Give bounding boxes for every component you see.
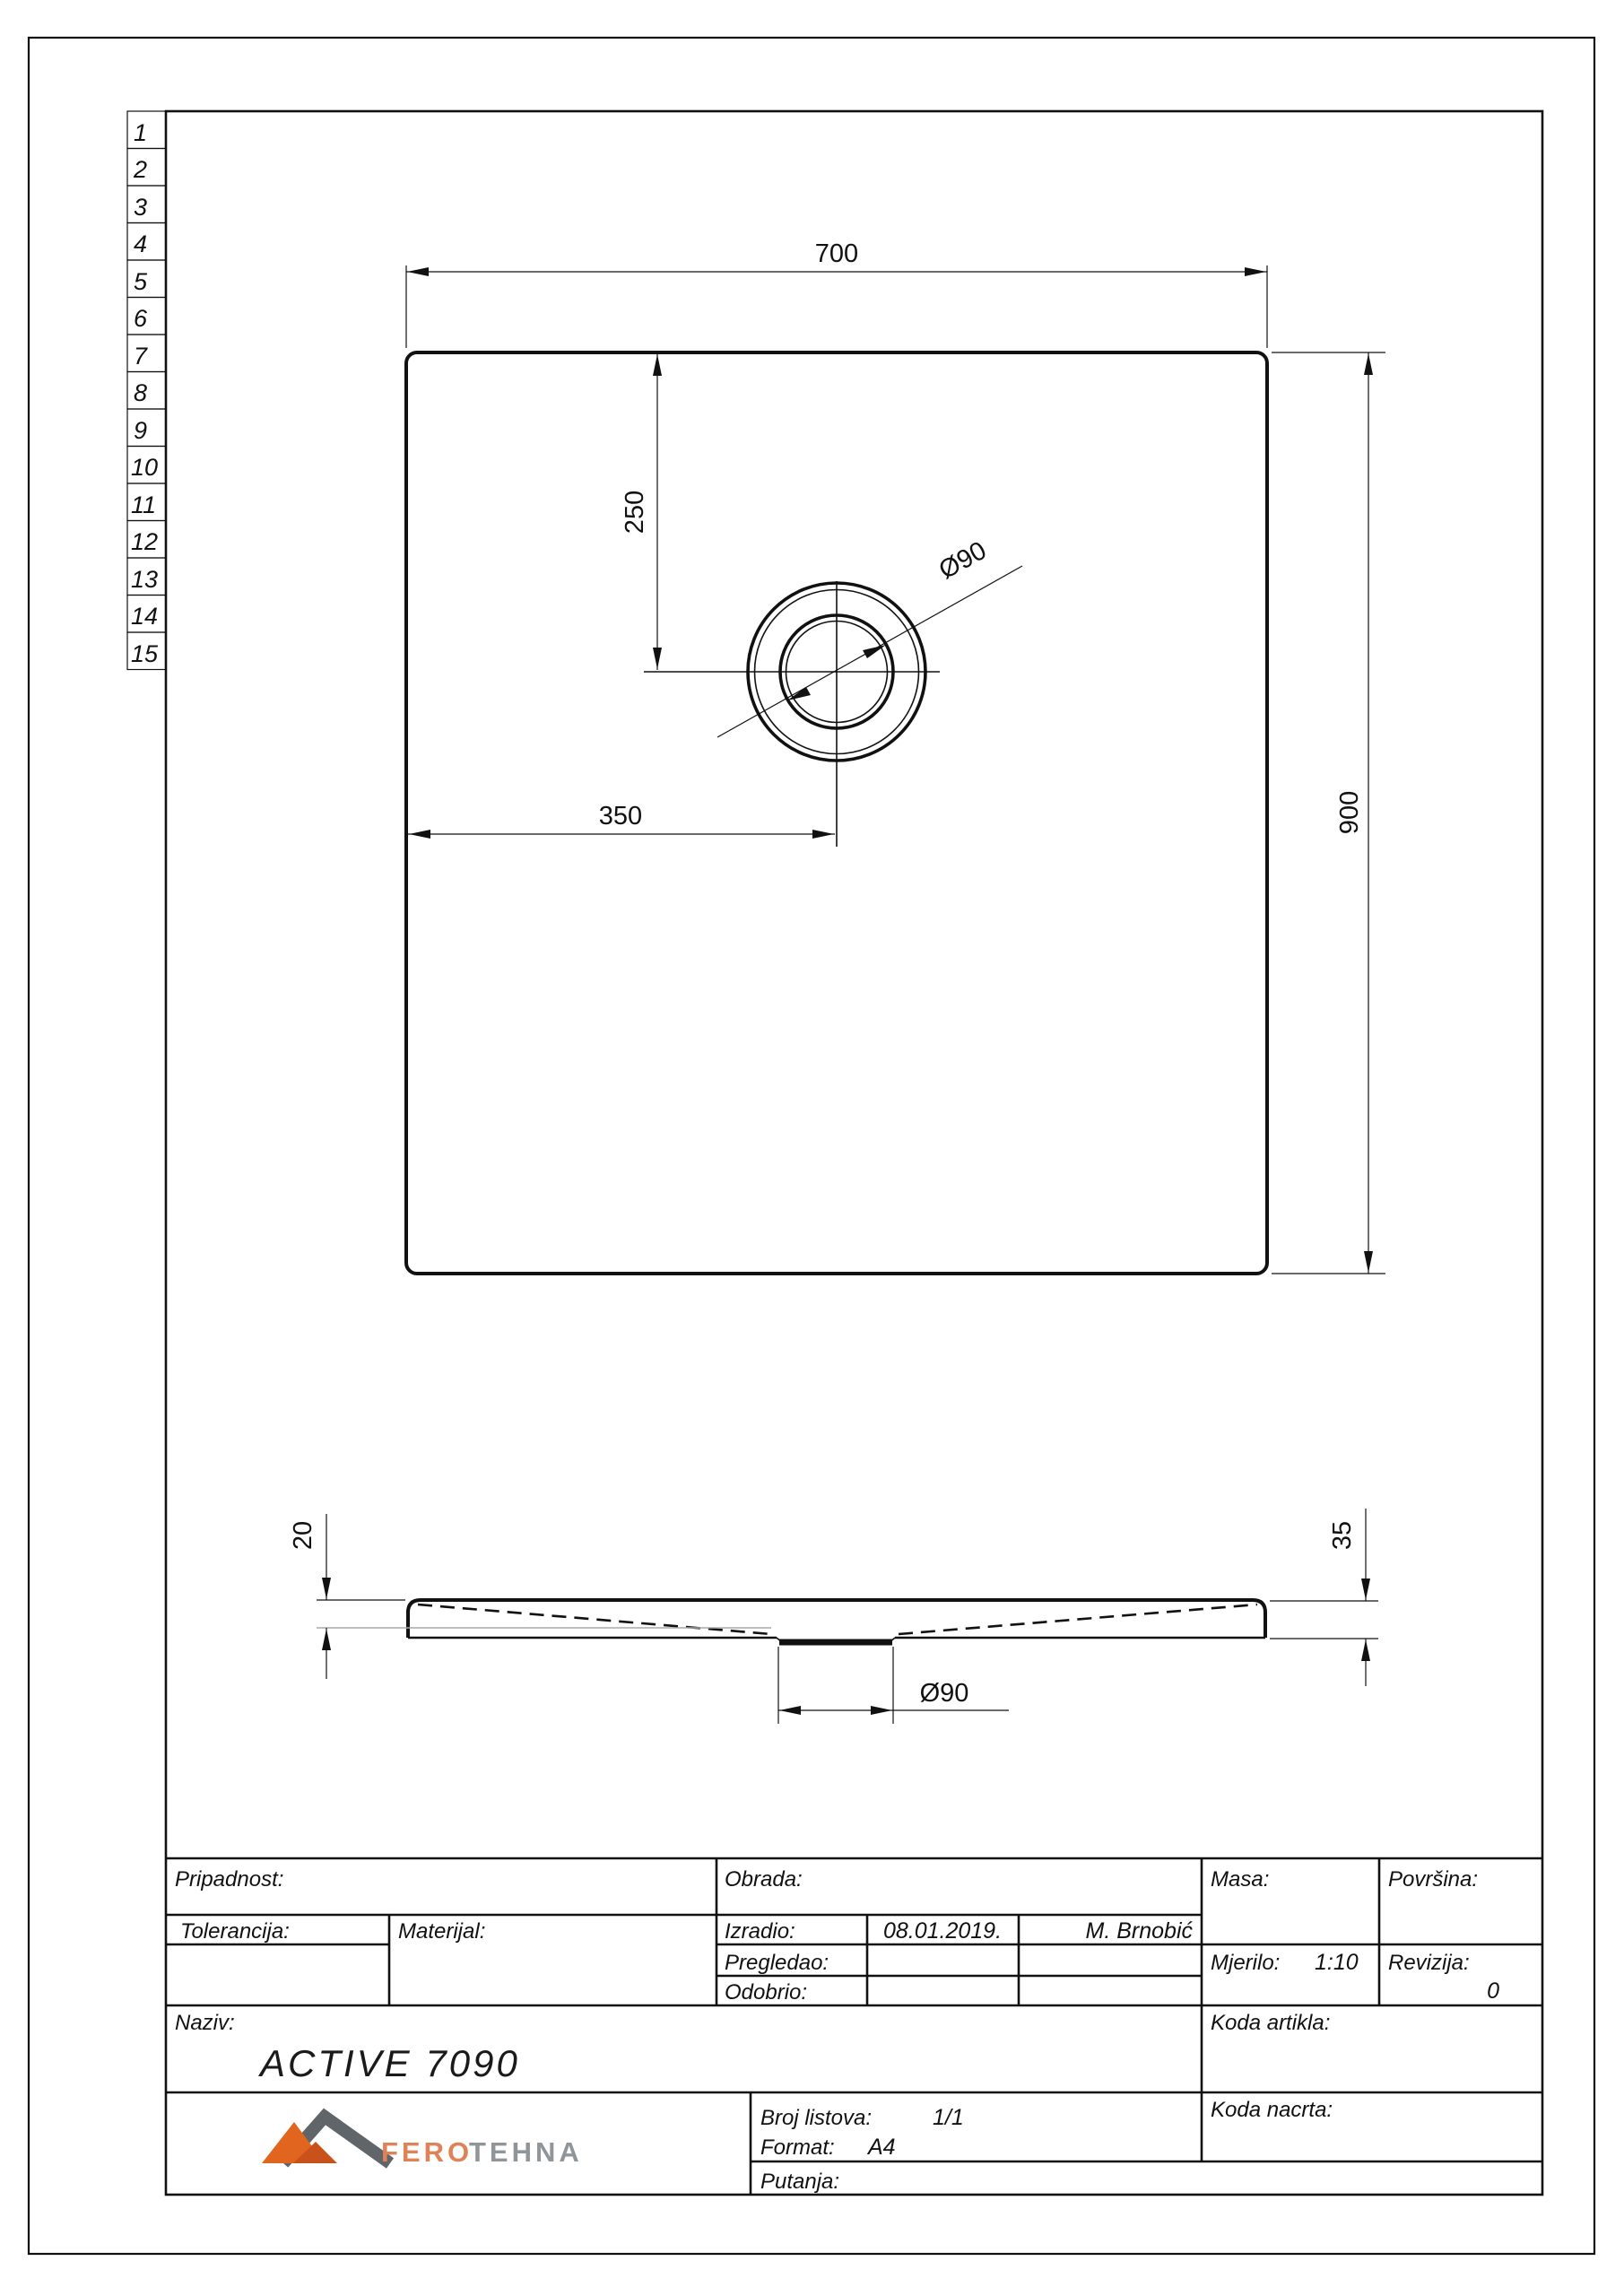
arrowhead-left — [407, 267, 429, 276]
dimension-20: 20 — [289, 1514, 405, 1679]
title-block: Pripadnost: Obrada: Masa: Površina: Tole… — [166, 1858, 1542, 2195]
masa-label: Masa: — [1211, 1867, 1269, 1892]
arrowhead-left — [779, 1706, 801, 1715]
arrowhead-bottom — [653, 648, 662, 669]
row-number: 5 — [134, 268, 148, 295]
logo-text-tehna: TEHNA — [469, 2136, 583, 2168]
mjerilo-label: Mjerilo: — [1211, 1951, 1280, 1975]
materijal-label: Materijal: — [398, 1919, 485, 1944]
dimension-drain-bottom: Ø90 — [778, 1647, 1009, 1724]
arrowhead-left — [409, 830, 430, 839]
arrowhead-down — [322, 1578, 331, 1599]
inner-floor-slope-right — [899, 1605, 1257, 1634]
izradio-label: Izradio: — [725, 1919, 795, 1944]
pregledao-label: Pregledao: — [725, 1951, 829, 1975]
dimension-text-drain-bottom: Ø90 — [920, 1679, 969, 1708]
row-number: 6 — [134, 305, 148, 332]
arrowhead-top — [1364, 353, 1373, 375]
arrowhead-up — [322, 1629, 331, 1650]
arrowhead-bottom — [1364, 1251, 1373, 1273]
arrowhead-top — [653, 354, 662, 376]
dimension-text-drain-top: Ø90 — [934, 536, 991, 586]
tolerancija-label: Tolerancija: — [180, 1919, 290, 1944]
section-view: 20 35 Ø90 — [289, 1509, 1378, 1724]
naziv-label: Naziv: — [175, 2011, 235, 2035]
obrada-label: Obrada: — [725, 1867, 803, 1892]
row-number: 4 — [134, 230, 147, 257]
izradio-date: 08.01.2019. — [883, 1918, 1002, 1944]
inner-frame — [166, 111, 1542, 2195]
dimension-35: 35 — [1270, 1509, 1378, 1686]
arrowhead-right — [812, 830, 834, 839]
dimension-text-700: 700 — [815, 239, 858, 268]
format-label: Format: — [760, 2135, 835, 2160]
row-number: 2 — [133, 156, 147, 183]
putanja-label: Putanja: — [760, 2170, 839, 2194]
dimension-text-20: 20 — [289, 1521, 317, 1550]
cad-sheet-canvas: 1 2 3 4 5 6 7 8 9 10 11 12 13 14 15 — [0, 0, 1624, 2296]
izradio-name: M. Brnobić — [1086, 1918, 1194, 1944]
drawing-sheet: { "row_numbers": ["1","2","3","4","5","6… — [0, 0, 1624, 2296]
mjerilo-value: 1:10 — [1315, 1950, 1359, 1975]
dimension-350: 350 — [408, 802, 835, 839]
koda-nacrta-label: Koda nacrta: — [1211, 2098, 1333, 2122]
row-number: 8 — [134, 379, 147, 406]
arrowhead-down — [1361, 1578, 1370, 1600]
logo-text-fero: FERO — [381, 2136, 473, 2168]
row-number: 12 — [131, 528, 158, 555]
broj-listova-value: 1/1 — [933, 2105, 964, 2130]
dimension-text-250: 250 — [621, 491, 649, 534]
inner-floor-slope-left — [418, 1605, 771, 1634]
row-number: 11 — [131, 491, 156, 518]
naziv-value: ACTIVE 7090 — [257, 2042, 520, 2084]
top-view: 700 900 250 350 — [406, 239, 1385, 1274]
row-number: 10 — [131, 454, 158, 481]
dimension-text-35: 35 — [1328, 1521, 1357, 1550]
row-number: 7 — [134, 343, 148, 370]
row-number: 15 — [131, 640, 159, 667]
arrowhead-up — [1361, 1639, 1370, 1661]
row-number: 1 — [134, 119, 147, 146]
revizija-value: 0 — [1487, 1979, 1499, 2004]
arrowhead-right — [871, 1706, 892, 1715]
arrowhead-right — [1245, 267, 1266, 276]
dimension-text-350: 350 — [599, 802, 642, 831]
pripadnost-label: Pripadnost: — [175, 1867, 283, 1892]
profile-top-surface — [408, 1600, 1265, 1638]
odobrio-label: Odobrio: — [725, 1980, 807, 2005]
row-number: 3 — [134, 194, 147, 221]
row-number-strip: 1 2 3 4 5 6 7 8 9 10 11 12 13 14 15 — [127, 111, 166, 670]
format-value: A4 — [866, 2135, 896, 2160]
dimension-250: 250 — [621, 353, 662, 670]
dimension-900: 900 — [1272, 352, 1385, 1274]
povrsina-label: Površina: — [1388, 1867, 1478, 1892]
koda-artikla-label: Koda artikla: — [1211, 2011, 1330, 2035]
row-number: 14 — [131, 603, 158, 630]
ferotehna-logo: FERO TEHNA — [262, 2117, 583, 2168]
broj-listova-label: Broj listova: — [760, 2106, 872, 2130]
row-number: 13 — [131, 566, 158, 593]
row-number: 9 — [134, 417, 147, 444]
revizija-label: Revizija: — [1388, 1951, 1470, 1975]
dimension-700: 700 — [406, 239, 1267, 348]
dimension-text-900: 900 — [1335, 791, 1364, 834]
